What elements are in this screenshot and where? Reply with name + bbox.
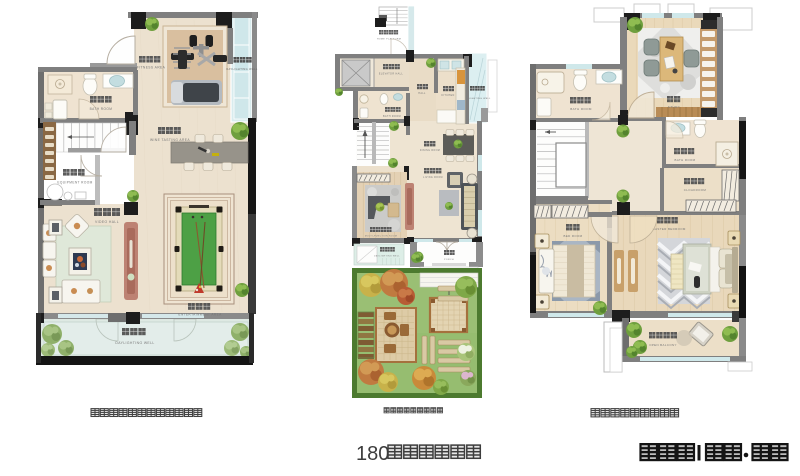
- svg-text:BATH ROOM: BATH ROOM: [383, 115, 401, 118]
- svg-text:180: 180: [356, 443, 389, 465]
- svg-text:DAYLIGHTING WELL: DAYLIGHTING WELL: [226, 67, 258, 71]
- svg-text:VIDEO HALL: VIDEO HALL: [95, 220, 119, 224]
- svg-text:DAYLIGHTING WELL: DAYLIGHTING WELL: [115, 341, 154, 345]
- svg-text:BED ROOM: BED ROOM: [564, 234, 583, 238]
- svg-text:BATH ROOM: BATH ROOM: [570, 107, 592, 111]
- svg-text:HALL: HALL: [418, 92, 426, 95]
- svg-text:ELEVATOR HALL: ELEVATOR HALL: [379, 73, 403, 76]
- svg-text:EQUIPMENT ROOM: EQUIPMENT ROOM: [57, 181, 92, 185]
- svg-text:OPEN BALCONY: OPEN BALCONY: [649, 343, 677, 347]
- svg-text:MULTI-FUNCTION ROOM: MULTI-FUNCTION ROOM: [365, 236, 397, 238]
- svg-text:KITCHEN: KITCHEN: [441, 94, 454, 97]
- svg-text:PORCH: PORCH: [444, 259, 454, 261]
- svg-text:DINING ROOM: DINING ROOM: [420, 150, 440, 152]
- svg-text:MASTER BEDROOM: MASTER BEDROOM: [652, 227, 686, 231]
- svg-text:CLOAKROOM: CLOAKROOM: [684, 188, 707, 192]
- svg-text:WINE TASTING AREA: WINE TASTING AREA: [150, 138, 190, 142]
- svg-text:BATH ROOM: BATH ROOM: [675, 158, 696, 162]
- svg-text:ENTERTAINMENT AREA: ENTERTAINMENT AREA: [178, 313, 222, 317]
- svg-text:LIVING ROOM: LIVING ROOM: [423, 177, 443, 179]
- svg-text:STUDY: STUDY: [668, 105, 680, 109]
- svg-text:FITNESS AREA: FITNESS AREA: [137, 66, 166, 70]
- svg-text:DAYLIGHTING WELL: DAYLIGHTING WELL: [374, 255, 400, 258]
- svg-text:BATH ROOM: BATH ROOM: [90, 107, 113, 111]
